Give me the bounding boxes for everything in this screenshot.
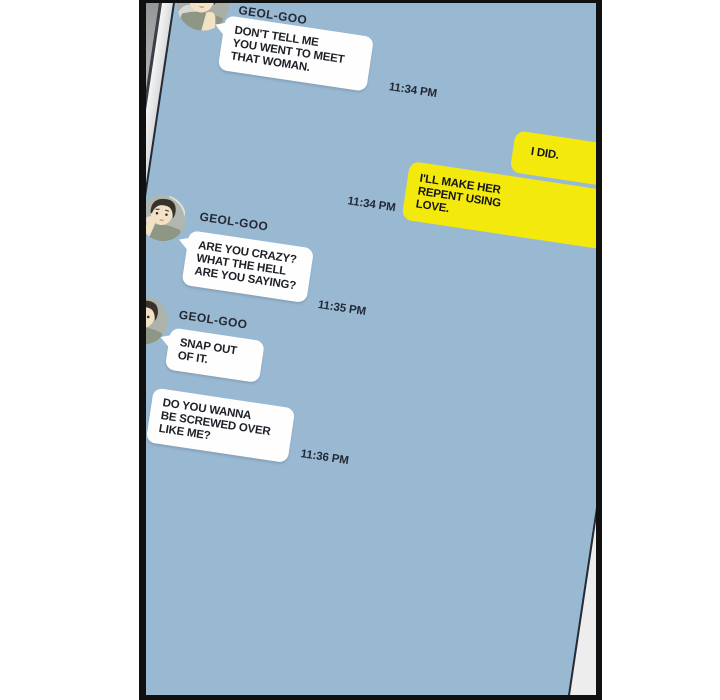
message-bubble-incoming: ARE YOU CRAZY? WHAT THE HELL ARE YOU SAY…: [181, 230, 314, 303]
contact-name-label: GEOL-GOO: [199, 210, 270, 234]
timestamp: 11:36 PM: [300, 448, 350, 467]
message-line: I DID.: [530, 146, 602, 178]
message-bubble-incoming: SNAP OUT OF IT.: [165, 327, 265, 383]
timestamp: 11:35 PM: [317, 299, 367, 318]
bubble-tail: [214, 21, 228, 38]
comic-panel: GEOL-GOO DON'T TELL ME YOU WENT TO MEET …: [139, 0, 602, 700]
bubble-tail: [177, 236, 191, 253]
message-bubble-incoming: DON'T TELL ME YOU WENT TO MEET THAT WOMA…: [218, 15, 374, 92]
timestamp: 11:34 PM: [347, 195, 397, 214]
webtoon-page: GEOL-GOO DON'T TELL ME YOU WENT TO MEET …: [0, 0, 720, 700]
message-bubble-incoming: DO YOU WANNA BE SCREWED OVER LIKE ME?: [146, 388, 296, 464]
bubble-tail: [159, 333, 173, 350]
contact-name-label: GEOL-GOO: [178, 308, 249, 332]
phone-chat-screen: GEOL-GOO DON'T TELL ME YOU WENT TO MEET …: [139, 0, 602, 700]
timestamp: 11:34 PM: [388, 81, 438, 100]
